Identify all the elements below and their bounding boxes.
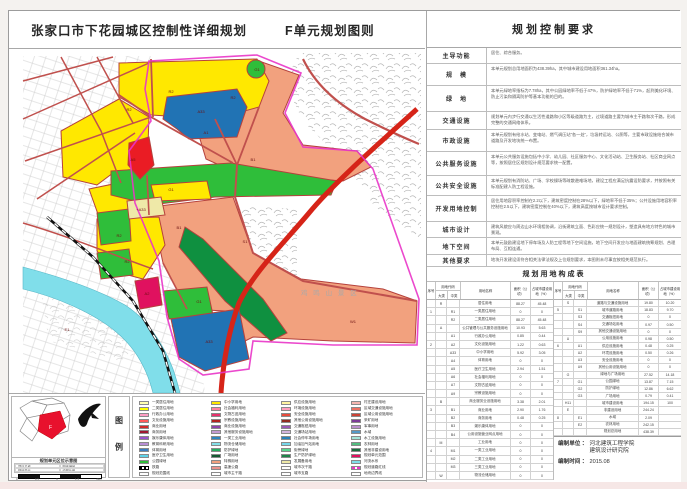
- cell-middle: A6: [447, 374, 460, 381]
- color-swatch: [139, 407, 149, 411]
- cell-seq: [427, 325, 436, 332]
- cell-middle: R2: [447, 316, 460, 323]
- color-swatch: [351, 436, 361, 440]
- legend-item-label: 社会福利用地: [224, 406, 246, 411]
- cell-area: 12.86: [639, 386, 659, 392]
- legend-item-label: 体育用地: [152, 448, 166, 453]
- cell-middle: M3: [447, 464, 460, 471]
- table-row: A公共管理与公共服务设施用地10.935.63: [427, 325, 553, 333]
- cell-area: 0.98: [639, 336, 659, 342]
- col-pct: 占城市建设用地（%）: [531, 282, 553, 299]
- legend-item-label: 防护绿地: [224, 448, 238, 453]
- legend-column: 村庄建设用地区域交通设施用地区域公用设施用地采矿用地军事用地水域水工设施用地农林…: [351, 400, 419, 477]
- color-swatch: [211, 425, 221, 429]
- table-row: 1R1一类居住用地00: [427, 308, 553, 316]
- color-swatch: [281, 425, 291, 429]
- cell-area: 88.27: [511, 300, 531, 307]
- cell-name: 交通枢纽用地: [587, 314, 639, 320]
- drafting-date-value: 2015.08: [590, 459, 610, 466]
- cell-major: [563, 343, 574, 349]
- cell-major: [563, 393, 574, 399]
- cell-seq: [427, 456, 436, 463]
- zone-code-label: G1: [254, 67, 260, 72]
- col-code-bottom: 大类中类: [436, 291, 460, 299]
- cell-name: 城市道路用地: [587, 307, 639, 313]
- cell-seq: [554, 372, 563, 378]
- cell-area: 0: [511, 472, 531, 479]
- legend-column: 供应设施用地环境设施用地安全设施用地其他公用设施用地交通枢纽用地交通场站用地社会…: [281, 400, 349, 477]
- cell-middle: B1: [447, 406, 460, 413]
- table-row: 6U1供应设施用地0.480.25: [554, 343, 681, 350]
- cell-seq: [427, 349, 436, 356]
- cell-seq: [554, 321, 563, 327]
- cell-name: 二类工业用地: [460, 456, 511, 463]
- color-swatch: [351, 425, 361, 429]
- table-row: R2二类居住用地88.2745.48: [427, 316, 553, 324]
- cell-name: 公用设施营业网点用地: [460, 431, 511, 438]
- cell-area: 0.79: [639, 393, 659, 399]
- control-row-value: 本单元规划有给水站、变电站、燃气调压站“各一处”，垃圾转运站、公厕等，主要市政设…: [487, 130, 681, 151]
- color-swatch: [281, 460, 291, 464]
- cell-seq: [427, 390, 436, 397]
- cell-seq: 8: [554, 415, 563, 421]
- cell-pct: 9.70: [659, 307, 681, 313]
- cell-middle: [574, 300, 587, 306]
- cell-area: 27.52: [639, 372, 659, 378]
- cell-area: 18.83: [639, 307, 659, 313]
- control-row-value: 本单元规划总用地面积为438.39ha，其中城市建设用地面积361.34ha。: [487, 64, 681, 85]
- comp-header: 序号用地代码大类中类用地名称面积（公顷）占城市建设用地（%）: [554, 282, 681, 300]
- cell-pct: 6.62: [659, 386, 681, 392]
- zone-code-label: A5: [131, 157, 137, 162]
- legend-item-label: 环境设施用地: [294, 406, 316, 411]
- cell-seq: [554, 357, 563, 363]
- cell-seq: [554, 422, 563, 428]
- title-bar: 张家口市下花园城区控制性详细规划 F单元规划图则: [9, 11, 425, 49]
- cell-middle: [574, 400, 587, 406]
- scan-edge-tint: [0, 482, 687, 489]
- table-row: S道路与交通设施用地19.8010.20: [554, 300, 681, 307]
- plan-sheet: 张家口市下花园城区控制性详细规划 F单元规划图则: [8, 10, 680, 481]
- cell-seq: [554, 336, 563, 342]
- table-row: E2农林用地242.15: [554, 422, 681, 429]
- keymap-info-cell: 绘图比例: [60, 468, 105, 472]
- zone-code-label: B1: [177, 225, 183, 230]
- cell-name: 物流仓储用地: [460, 472, 511, 479]
- zone-code-label: G1: [196, 299, 202, 304]
- cell-major: [563, 307, 574, 313]
- cell-name: 供应设施用地: [587, 343, 639, 349]
- table-row: 2A2文化设施用地1.220.63: [427, 341, 553, 349]
- cell-area: 0: [511, 431, 531, 438]
- color-swatch: [211, 413, 221, 417]
- cell-major: [436, 357, 447, 364]
- zone-code-label: E1: [65, 327, 71, 332]
- cell-area: 88.27: [511, 316, 531, 323]
- cell-middle: G3: [574, 393, 587, 399]
- control-row-label: 公共服务设施: [427, 152, 487, 175]
- table-row: 8E1水域2.09: [554, 415, 681, 422]
- road3-symbol-swatch: [281, 472, 291, 476]
- legend-item-label: 生产防护绿地: [294, 453, 316, 458]
- cell-middle: E2: [574, 422, 587, 428]
- color-swatch: [281, 442, 291, 446]
- cell-major: [563, 379, 574, 385]
- control-row: 其他要求地块开发建设须符合相关法律法规及上位规划要求，本图则未尽事宜按相关规范执…: [427, 255, 681, 267]
- cell-middle: U2: [574, 350, 587, 356]
- cell-major: [563, 386, 574, 392]
- zone-code-label: B1: [251, 157, 257, 162]
- page-title: 张家口市下花园城区控制性详细规划: [31, 20, 247, 39]
- cell-name: 交通场站用地: [587, 321, 639, 327]
- cell-pct: 0: [659, 364, 681, 370]
- legend-item-label: 城市次干路: [294, 465, 312, 470]
- cell-major: B: [436, 398, 447, 405]
- box-symbol-swatch: [139, 472, 149, 476]
- composition-table-left: 序号用地代码大类中类用地名称面积（公顷）占城市建设用地（%）R居住用地88.27…: [427, 282, 554, 480]
- scanned-plan-sheet: { "page": { "title": "张家口市下花园城区控制性详细规划",…: [0, 0, 687, 489]
- cell-pct: 0: [659, 314, 681, 320]
- color-swatch: [351, 419, 361, 423]
- cell-area: 0.85: [511, 333, 531, 340]
- scale-tick-label: 2km: [96, 477, 102, 481]
- control-row-value: 本单元鼓励建设地下停车场及人防工程等地下空间设施，地下空间开发应与地面建筑统筹规…: [487, 238, 681, 254]
- table-row: 4M1一类工业用地00: [427, 447, 553, 455]
- keymap-svg: F: [12, 397, 105, 455]
- cell-pct: 100: [659, 400, 681, 406]
- color-swatch: [281, 407, 291, 411]
- cell-seq: [427, 439, 436, 446]
- cell-seq: [427, 374, 436, 381]
- cell-name: 医疗卫生用地: [460, 366, 511, 373]
- cell-pct: 0: [531, 439, 553, 446]
- color-swatch: [351, 442, 361, 446]
- table-row: W物流仓储用地00: [427, 472, 553, 480]
- cell-middle: S9: [574, 329, 587, 335]
- cell-seq: [427, 316, 436, 323]
- cell-seq: [554, 350, 563, 356]
- cell-area: 0: [511, 447, 531, 454]
- cell-major: [563, 350, 574, 356]
- cell-middle: [447, 325, 460, 332]
- cell-seq: [554, 407, 563, 413]
- cell-name: 中小学用地: [460, 349, 511, 356]
- control-row: 主导功能居住、综合服务。: [427, 48, 681, 64]
- control-row-label: 城市设计: [427, 222, 487, 237]
- cell-name: 安全设施用地: [587, 357, 639, 363]
- legend-item-label: 规划单元范围: [364, 453, 386, 458]
- color-swatch: [211, 454, 221, 458]
- cell-major: [563, 314, 574, 320]
- legend-item: 地块边界线: [351, 471, 419, 477]
- col-area: 面积（公顷）: [639, 282, 659, 299]
- cell-name: 广场用地: [587, 393, 639, 399]
- cell-name: 非建设用地: [587, 407, 639, 413]
- cell-name: 行政办公用地: [460, 333, 511, 340]
- cell-middle: A33: [447, 349, 460, 356]
- cell-major: H11: [563, 400, 574, 406]
- cell-middle: G1: [574, 379, 587, 385]
- drafting-org-line1: 河北建筑工程学院: [590, 441, 635, 448]
- box-symbol-swatch: [351, 472, 361, 476]
- legend-item-label: 中小学用地: [224, 400, 242, 405]
- cell-name: 公用设施用地: [587, 336, 639, 342]
- control-row: 绿 地本单元绿地率指标为7.78ha，其中公园绿地率不低于47%，防护绿地率不低…: [427, 86, 681, 112]
- zone-code-label: R2: [126, 107, 132, 112]
- control-row: 市政设施本单元规划有给水站、变电站、燃气调压站“各一处”，垃圾转运站、公厕等，主…: [427, 130, 681, 152]
- cell-name: 水域: [587, 415, 639, 421]
- cell-seq: [427, 366, 436, 373]
- control-requirements-table: 主导功能居住、综合服务。规 模本单元规划总用地面积为438.39ha，其中城市建…: [427, 48, 681, 267]
- cell-name: 防护绿地: [587, 386, 639, 392]
- color-swatch: [281, 448, 291, 452]
- legend-item-label: 社会停车场用地: [294, 436, 319, 441]
- legend-item-label: 交通枢纽用地: [294, 424, 316, 429]
- cell-major: [563, 422, 574, 428]
- cell-area: 194.15: [639, 400, 659, 406]
- rail-symbol-swatch: [139, 466, 149, 470]
- cell-area: 0: [639, 357, 659, 363]
- cell-area: 0.48: [511, 415, 531, 422]
- road-symbol-swatch: [211, 472, 221, 476]
- keymap-info-cell: 规划单元: [15, 468, 60, 472]
- control-row: 城市设计建筑风貌应与周边山水环境相协调，沿街建筑立面、色彩应统一规划设计，塑造具…: [427, 222, 681, 238]
- cell-seq: [427, 464, 436, 471]
- cell-pct: 2.01: [531, 398, 553, 405]
- cell-area: 2.94: [511, 366, 531, 373]
- cell-area: 0: [511, 374, 531, 381]
- col-code-bottom: 大类中类: [563, 291, 587, 299]
- cell-area: 0: [511, 382, 531, 389]
- table-row: A6社会福利用地00: [427, 374, 553, 382]
- legend-item-label: 二类居住用地: [152, 406, 174, 411]
- cell-major: A: [436, 325, 447, 332]
- legend-item-label: 公园绿地: [152, 459, 166, 464]
- table-row: U2环境设施用地0.500.26: [554, 350, 681, 357]
- cell-seq: [427, 382, 436, 389]
- bottom-strip: F 规划单元区位示意图 项目名称图纸编号规划单元绘图比例 00.511.52km…: [9, 394, 425, 480]
- cell-name: 其他公用设施用地: [587, 364, 639, 370]
- cell-middle: A1: [447, 333, 460, 340]
- cell-area: 10.93: [511, 325, 531, 332]
- cell-pct: 0: [531, 431, 553, 438]
- cell-middle: [574, 336, 587, 342]
- zone-code-label: R2: [168, 89, 174, 94]
- cell-middle: A9: [447, 390, 460, 397]
- color-swatch: [139, 419, 149, 423]
- cell-name: 工业用地: [460, 439, 511, 446]
- cell-middle: U1: [574, 343, 587, 349]
- cell-major: [436, 456, 447, 463]
- legend-item-label: 区域交通设施用地: [364, 406, 393, 411]
- cell-name: 体育用地: [460, 357, 511, 364]
- legend-item: 规划范围线: [139, 471, 207, 477]
- cell-middle: U9: [574, 364, 587, 370]
- control-row-value: 建筑风貌应与周边山水环境相协调，沿街建筑立面、色彩应统一规划设计，塑造具有地方特…: [487, 222, 681, 237]
- cell-middle: A4: [447, 357, 460, 364]
- cell-pct: 0: [531, 472, 553, 479]
- col-code: 用地代码大类中类: [436, 282, 461, 299]
- control-row-value: 本单元绿地率指标为7.78ha，其中公园绿地率不低于47%，防护绿地率不低于71…: [487, 86, 681, 111]
- color-swatch: [281, 419, 291, 423]
- cell-middle: [574, 372, 587, 378]
- color-swatch: [281, 454, 291, 458]
- cell-middle: [574, 429, 587, 435]
- cell-major: [563, 364, 574, 370]
- cell-area: 0: [511, 439, 531, 446]
- cell-name: 二类居住用地: [460, 316, 511, 323]
- cell-middle: S3: [574, 314, 587, 320]
- color-swatch: [351, 454, 361, 458]
- page-subtitle: F单元规划图则: [285, 20, 375, 39]
- cell-major: [436, 333, 447, 340]
- legend-item-label: 农林用地: [364, 442, 378, 447]
- table-row: A5医疗卫生用地2.941.51: [427, 366, 553, 374]
- cell-major: [436, 464, 447, 471]
- legend-item-label: 采矿用地: [364, 418, 378, 423]
- scale-ticks: 00.511.52km: [16, 477, 102, 481]
- cell-seq: [554, 300, 563, 306]
- table-row: 规划总用地438.39: [554, 429, 681, 436]
- cell-major: M: [436, 439, 447, 446]
- cell-name: 一类居住用地: [460, 308, 511, 315]
- cell-seq: [427, 415, 436, 422]
- table-row: B3娱乐康体用地00: [427, 423, 553, 431]
- cell-name: 文化设施用地: [460, 341, 511, 348]
- cell-pct: 0: [531, 390, 553, 397]
- cell-middle: M2: [447, 456, 460, 463]
- cell-name: 三类工业用地: [460, 464, 511, 471]
- cell-middle: B2: [447, 415, 460, 422]
- color-swatch: [281, 436, 291, 440]
- color-swatch: [351, 460, 361, 464]
- table-row: U9其他公用设施用地00: [554, 364, 681, 371]
- cell-pct: 0.25: [531, 415, 553, 422]
- table-row: A33中小学用地5.923.05: [427, 349, 553, 357]
- cell-name: 公园绿地: [587, 379, 639, 385]
- cell-pct: 0: [531, 357, 553, 364]
- dash-symbol-swatch: [351, 466, 361, 470]
- col-code-top: 用地代码: [436, 282, 460, 291]
- cell-pct: 0.26: [659, 350, 681, 356]
- cell-major: [436, 447, 447, 454]
- cell-major: [436, 382, 447, 389]
- cell-area: 242.15: [639, 422, 659, 428]
- cell-seq: 7: [554, 379, 563, 385]
- planning-map: R2R2R2A33G1A1B1G1A5R2R2A2B1G1A33W1E1S1+A…: [9, 49, 425, 394]
- zone-code-label: +A33: [136, 207, 146, 212]
- color-swatch: [139, 442, 149, 446]
- cell-seq: [554, 329, 563, 335]
- table-row: M工业用地00: [427, 439, 553, 447]
- cell-pct: 14.18: [659, 372, 681, 378]
- legend-item: 城市主干路: [211, 471, 279, 477]
- legend-item-label: 规划道路红线: [364, 465, 386, 470]
- table-row: A4体育用地00: [427, 357, 553, 365]
- col-code-top: 用地代码: [563, 282, 587, 291]
- legend-item-label: 铁路: [152, 465, 159, 470]
- cell-pct: 5.63: [531, 325, 553, 332]
- scale-tick-label: 1: [56, 477, 58, 481]
- cell-area: 5.92: [511, 349, 531, 356]
- scale-tick-label: 1.5: [75, 477, 79, 481]
- cell-pct: 0.50: [659, 336, 681, 342]
- cell-seq: [427, 398, 436, 405]
- control-row: 交通设施规划单元内步行交通以生活性道路和小区等级道路为主，过境道路主要为城市主干…: [427, 112, 681, 130]
- zone-code-label: S1: [243, 239, 249, 244]
- cell-name: 环境设施用地: [587, 350, 639, 356]
- table-row: G绿地与广场用地27.5214.18: [554, 372, 681, 379]
- zone-code-label: A2: [145, 291, 151, 296]
- control-row-label: 开发用地控制: [427, 196, 487, 221]
- legend-item-label: 文化设施用地: [152, 418, 174, 423]
- comp-rows: S道路与交通设施用地19.8010.205S1城市道路用地18.839.70S3…: [554, 300, 681, 436]
- right-panel: 规划控制要求 主导功能居住、综合服务。规 模本单元规划总用地面积为438.39h…: [426, 11, 681, 482]
- cell-pct: 0: [531, 447, 553, 454]
- zone-code-label: R2: [116, 233, 122, 238]
- cell-pct: 1.51: [531, 366, 553, 373]
- cell-seq: 3: [427, 406, 436, 413]
- cell-name: 商业用地: [460, 406, 511, 413]
- table-row: B4公用设施营业网点用地00: [427, 431, 553, 439]
- north-arrow-icon: [78, 404, 101, 427]
- cell-major: U: [563, 336, 574, 342]
- legend-item-label: 高速公路: [224, 465, 238, 470]
- cell-major: S: [563, 300, 574, 306]
- col-name: 用地名称: [588, 282, 639, 299]
- color-swatch: [139, 401, 149, 405]
- cell-area: 0: [511, 423, 531, 430]
- legend-item-label: 加油加气站用地: [294, 442, 319, 447]
- cell-name: 城市建设用地: [587, 400, 639, 406]
- cell-pct: 0: [659, 329, 681, 335]
- cell-major: [563, 357, 574, 363]
- scale-tick-label: 0.5: [35, 477, 39, 481]
- cell-middle: M1: [447, 447, 460, 454]
- table-row: B商业服务业设施用地3.382.01: [427, 398, 553, 406]
- cell-middle: [447, 398, 460, 405]
- cell-area: 2.09: [639, 415, 659, 421]
- color-swatch: [281, 430, 291, 434]
- cell-major: [563, 429, 574, 435]
- cell-major: G: [563, 372, 574, 378]
- drafting-block: 编制单位 ：河北建筑工程学院建筑设计研究院编制时间 ：2015.08: [554, 436, 681, 480]
- cell-seq: [427, 300, 436, 307]
- table-row: G2防护绿地12.866.62: [554, 386, 681, 393]
- legend-item-label: 广场用地: [224, 453, 238, 458]
- cell-area: 0.50: [639, 350, 659, 356]
- cell-middle: G2: [574, 386, 587, 392]
- cell-middle: B3: [447, 423, 460, 430]
- color-swatch: [281, 413, 291, 417]
- table-row: H11城市建设用地194.15100: [554, 400, 681, 407]
- control-row: 公共服务设施本单元公共服务设施包括中小学、幼儿园、社区服务中心、文化活动站、卫生…: [427, 152, 681, 176]
- zone-code-label: W1: [350, 319, 357, 324]
- cell-area: 0: [511, 390, 531, 397]
- col-seq: 序号: [554, 282, 563, 299]
- cell-seq: [554, 364, 563, 370]
- zone-reserve-cream: [127, 197, 165, 219]
- cell-area: 0: [639, 364, 659, 370]
- cell-major: [436, 423, 447, 430]
- cell-major: R: [436, 300, 447, 307]
- control-requirements-header: 规划控制要求: [427, 11, 681, 48]
- col-middle: 中类: [575, 291, 587, 299]
- legend-item-label: 村庄建设用地: [364, 400, 386, 405]
- cell-major: [436, 341, 447, 348]
- table-row: U公用设施用地0.980.50: [554, 336, 681, 343]
- legend-item-label: 区域公用设施用地: [364, 412, 393, 417]
